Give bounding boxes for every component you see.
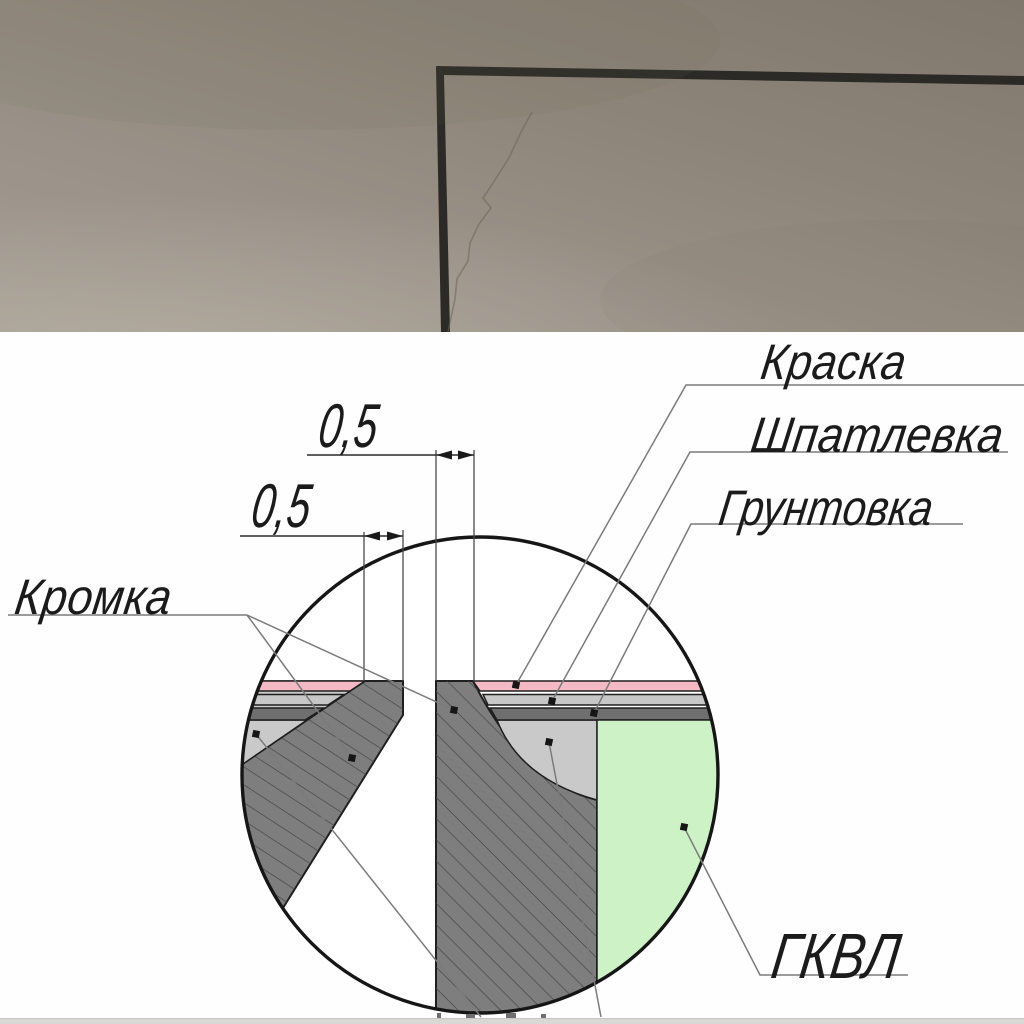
primer-layer-left xyxy=(200,708,324,720)
callout-primer-label: Грунтовка xyxy=(716,483,937,533)
cropped-bottom-strip xyxy=(0,1018,1024,1024)
filler-layer-right xyxy=(483,695,735,706)
callout-board-label: ГКВЛ xyxy=(768,924,905,988)
paint-layer-left xyxy=(200,681,365,691)
callout-paint-label: Краска xyxy=(758,337,910,387)
callout-filler-label: Шпатлевка xyxy=(748,410,1007,460)
dimension-upper-value: 0,5 xyxy=(315,396,382,458)
primer-layer-right xyxy=(490,708,735,720)
screenshot: Краска Шпатлевка Грунтовка Кромка ГКВЛ 0… xyxy=(0,0,1024,1024)
callout-edge-label: Кромка xyxy=(12,572,175,622)
filler-layer-left xyxy=(200,695,344,706)
dimension-lower-value: 0,5 xyxy=(248,476,315,538)
